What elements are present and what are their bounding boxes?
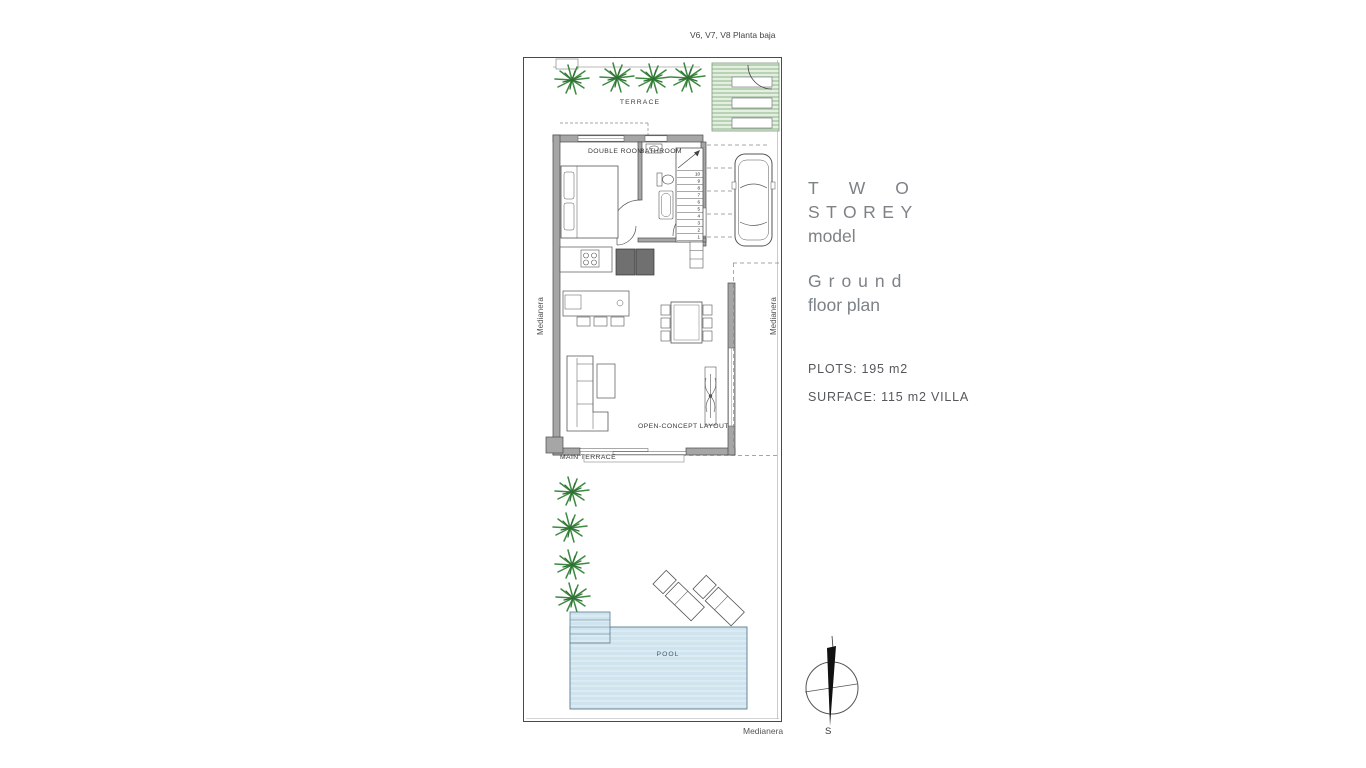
stepping-stone: [732, 98, 772, 108]
kitchen-unit: [636, 249, 654, 275]
bathroom-label: BATHROOM: [640, 149, 682, 156]
bar-stool: [594, 317, 607, 326]
coffee-table: [597, 364, 615, 398]
bar-stool: [577, 317, 590, 326]
plan-title-line2: floor plan: [808, 293, 908, 317]
model-title-line3: model: [808, 224, 939, 248]
double-room-label: DOUBLE ROOM: [588, 149, 643, 156]
model-title-block: TWO STOREY model: [808, 176, 939, 248]
open-concept-label: OPEN-CONCEPT LAYOUT: [638, 424, 729, 431]
pillow: [564, 172, 574, 199]
plan-title-line1: Ground: [808, 269, 908, 293]
medianera-left-label: Medianera: [537, 297, 545, 335]
bar-stool: [611, 317, 624, 326]
model-title-line2: STOREY: [808, 200, 939, 224]
compass-south-label: S: [825, 727, 831, 737]
plots-value: PLOTS: 195 m2: [808, 362, 908, 376]
pillow: [564, 203, 574, 230]
dining-table: [671, 302, 702, 343]
grass-entry-area: [712, 63, 779, 131]
main-terrace-label: MAIN TERRACE: [560, 455, 616, 462]
car: [732, 154, 775, 246]
dining-chair: [703, 305, 712, 315]
dining-chair: [661, 331, 670, 341]
stepping-stone: [732, 118, 772, 128]
kitchen-unit: [616, 249, 635, 275]
dining-chair: [661, 305, 670, 315]
cooktop: [581, 250, 599, 267]
toilet-tank: [657, 173, 662, 186]
medianera-bottom-label: Medianera: [743, 727, 783, 736]
pool-steps: [570, 612, 610, 643]
surface-value: SURFACE: 115 m2 VILLA: [808, 390, 969, 404]
pool-label: POOL: [648, 652, 688, 659]
dining-chair: [703, 318, 712, 328]
dining-chair: [661, 318, 670, 328]
kitchen: [560, 247, 654, 275]
stair-number: 10: [695, 172, 701, 177]
dining-set: [661, 302, 712, 343]
side-mirror: [771, 182, 775, 189]
compass: [805, 636, 858, 726]
plan-title-block: Ground floor plan: [808, 269, 908, 317]
dining-chair: [703, 331, 712, 341]
floor-plan-page: 1 2 3 4 5 6 7 8 9 10: [0, 0, 1366, 768]
side-mirror: [732, 182, 736, 189]
bed: [561, 166, 618, 238]
terrace-label: TERRACE: [610, 100, 670, 107]
plan-header-label: V6, V7, V8 Planta baja: [690, 31, 776, 40]
model-title-line1: TWO: [808, 176, 939, 200]
toilet: [663, 175, 674, 184]
medianera-right-label: Medianera: [770, 297, 778, 335]
